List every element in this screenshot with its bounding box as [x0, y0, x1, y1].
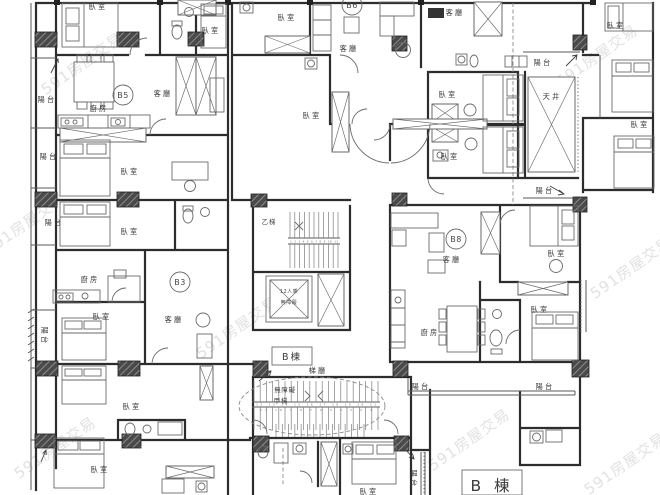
room-label-living: 客廳 [165, 315, 184, 324]
kitchen-counter [58, 115, 150, 128]
watermark: 591房屋交易 [425, 405, 514, 475]
bed [614, 136, 654, 188]
room-label-lightwell: 天井 [543, 92, 562, 101]
unit-badge-b6: B6 [346, 1, 358, 10]
side-table [344, 17, 359, 33]
washer [305, 58, 317, 69]
room-label-living: 客廳 [443, 255, 462, 264]
washbasin [274, 443, 288, 463]
room-label-bedroom: 臥室 [360, 487, 379, 495]
sink [143, 425, 151, 433]
building-tag-small: B棟 [282, 351, 302, 363]
room-label-balcony: 陽台 [40, 327, 49, 346]
room-label-balcony: 陽台 [412, 382, 431, 391]
watermark: 591房屋交易 [587, 233, 660, 303]
room-label-bedroom: 臥室 [439, 90, 458, 99]
sofa [380, 2, 414, 36]
washer [343, 444, 353, 454]
room-label-stair-b: 乙梯 [262, 217, 276, 226]
room-label-bedroom: 臥室 [631, 120, 650, 129]
room-label-bedroom: 臥室 [531, 305, 550, 314]
room-label-bedroom: 臥室 [303, 111, 322, 120]
watermark: 591房屋交易 [193, 293, 282, 363]
toilet [183, 206, 193, 223]
toilet [490, 330, 502, 354]
bed [60, 202, 110, 246]
room-label-bedroom: 臥室 [123, 402, 142, 411]
sofa [391, 213, 438, 246]
stair-b-treads-lower [290, 244, 338, 268]
room-label-bedroom: 臥室 [121, 227, 140, 236]
dining-table [439, 306, 485, 352]
room-label-kitchen: 廚房 [421, 328, 440, 337]
room-label-bedroom: 臥室 [91, 465, 110, 474]
bed [62, 318, 106, 360]
armchair [196, 313, 210, 327]
unit-badge-b3: B3 [174, 278, 186, 287]
room-label-bedroom: 臥室 [93, 312, 112, 321]
room-label-stair-hall: 梯廳 [309, 366, 328, 375]
room-label-balcony: 陽台 [38, 95, 57, 104]
tread-numbers-lower: 11 10 9 8 7 6 5 4 3 2 1 [260, 408, 372, 412]
watermark: 591房屋交易 [581, 429, 660, 495]
room-label-balcony: 陽台 [534, 58, 553, 67]
room-label-balcony: 陽台 [40, 152, 59, 161]
bed [352, 442, 396, 484]
elevator-accessible-label: 無障礙 [281, 299, 298, 306]
bed [60, 140, 110, 196]
bed [62, 366, 106, 404]
stool [465, 138, 477, 150]
room-label-balcony: 陽台 [45, 218, 64, 227]
desk [172, 162, 208, 192]
floor-plan-page: 591房屋交易 591房屋交易 591房屋交易 591房屋交易 591房屋交易 … [0, 0, 660, 495]
stool [464, 104, 476, 116]
room-label-bedroom: 臥室 [607, 21, 626, 30]
shelf [505, 56, 527, 67]
unit-badge-b8: B8 [450, 235, 462, 244]
room-label-stair-a: 甲梯 [274, 396, 288, 405]
bed [612, 60, 653, 112]
room-label-barrier-free: 無障礙 [274, 385, 296, 394]
tv-cabinet [429, 233, 444, 252]
toilet [125, 423, 135, 435]
unit-badge-b5: B5 [117, 91, 129, 100]
room-label-living: 客廳 [154, 89, 173, 98]
kitchen-counter [391, 290, 405, 348]
bathtub [158, 422, 182, 435]
bed [532, 312, 578, 360]
tv [428, 8, 444, 18]
stove [196, 481, 207, 492]
room-label-kitchen: 廚房 [81, 275, 100, 284]
toilet [470, 55, 478, 67]
building-tag-large: B 棟 [470, 477, 513, 495]
room-label-balcony: 陽台 [536, 382, 555, 391]
room-label-living: 客廳 [446, 8, 465, 17]
washer [456, 54, 467, 65]
washer [293, 443, 306, 454]
room-label-bedroom: 臥室 [202, 26, 221, 35]
room-label-bedroom: 臥室 [89, 2, 108, 11]
sink [493, 310, 502, 319]
washer [530, 431, 543, 443]
stair-bottom-treads [276, 424, 364, 437]
counter [546, 430, 562, 442]
room-label-bedroom: 臥室 [548, 249, 567, 258]
room-label-balcony: 陽台 [409, 470, 418, 489]
toilet [172, 21, 182, 39]
room-label-living: 客廳 [340, 44, 359, 53]
desk [162, 479, 184, 493]
room-label-bedroom: 臥室 [121, 167, 140, 176]
room-label-bedroom: 臥室 [441, 152, 460, 161]
b-building-floor-plan: 591房屋交易 591房屋交易 591房屋交易 591房屋交易 591房屋交易 … [0, 0, 660, 495]
bed [530, 206, 578, 246]
sofa [313, 5, 331, 51]
elevator-capacity-label: 12人乘 [280, 288, 298, 295]
room-label-kitchen: 廚房 [90, 104, 109, 113]
stair-b-treads [290, 212, 338, 238]
sink [201, 208, 210, 217]
room-label-bedroom: 臥室 [278, 13, 297, 22]
tread-numbers-stair-b: 1 2 3 4 5 6 7 8 9 10 11 [290, 240, 338, 244]
armchair [550, 260, 563, 273]
elevator-core: 12人乘 無障礙 [266, 274, 344, 326]
room-label-balcony: 陽台 [536, 186, 555, 195]
